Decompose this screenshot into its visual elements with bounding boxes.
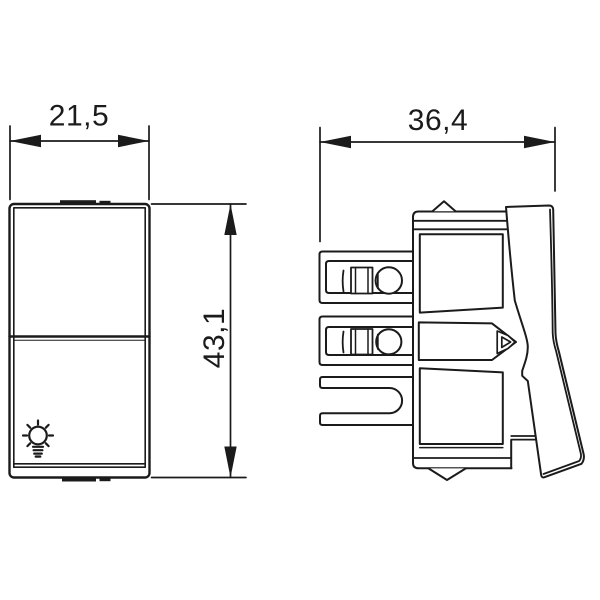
housing-top-band-lines	[414, 221, 508, 230]
side-depth-arrow-left	[320, 136, 351, 148]
terminal-2	[320, 317, 414, 366]
terminal-2-screw-shaft	[351, 329, 373, 355]
housing-upper-panel	[420, 234, 503, 312]
terminal-1-screw-head	[376, 267, 402, 293]
front-view	[10, 200, 150, 481]
side-depth-arrow-right	[524, 136, 555, 148]
housing-top-bump	[433, 201, 456, 211]
housing-lower-panel	[420, 368, 503, 444]
side-depth-label: 36,4	[408, 104, 468, 137]
housing-ledge-lines	[511, 436, 537, 440]
terminal-2-screw-head	[376, 329, 401, 354]
front-height-label: 43,1	[198, 308, 231, 368]
terminal-2-clamp	[343, 332, 344, 353]
technical-drawing-page: 21,5 43,1 36,4	[0, 0, 600, 600]
housing-bottom-bump	[429, 468, 466, 480]
drawing-svg: 21,5 43,1 36,4	[0, 0, 600, 600]
dimension-front-height: 43,1	[152, 204, 247, 478]
front-width-label: 21,5	[49, 100, 109, 133]
fork-terminal	[320, 377, 413, 425]
terminal-1-screw-shaft	[351, 268, 373, 294]
terminal-1	[320, 252, 414, 304]
pivot-detent-outer	[497, 331, 515, 354]
side-view	[320, 201, 584, 480]
terminal-1-clamp	[343, 271, 344, 292]
front-height-arrow-top	[224, 204, 236, 235]
front-outer-frame	[10, 204, 150, 478]
front-height-arrow-bottom	[224, 447, 236, 478]
front-width-arrow-right	[118, 135, 149, 147]
front-width-arrow-left	[10, 135, 41, 147]
dimension-front-width: 21,5	[10, 100, 149, 200]
